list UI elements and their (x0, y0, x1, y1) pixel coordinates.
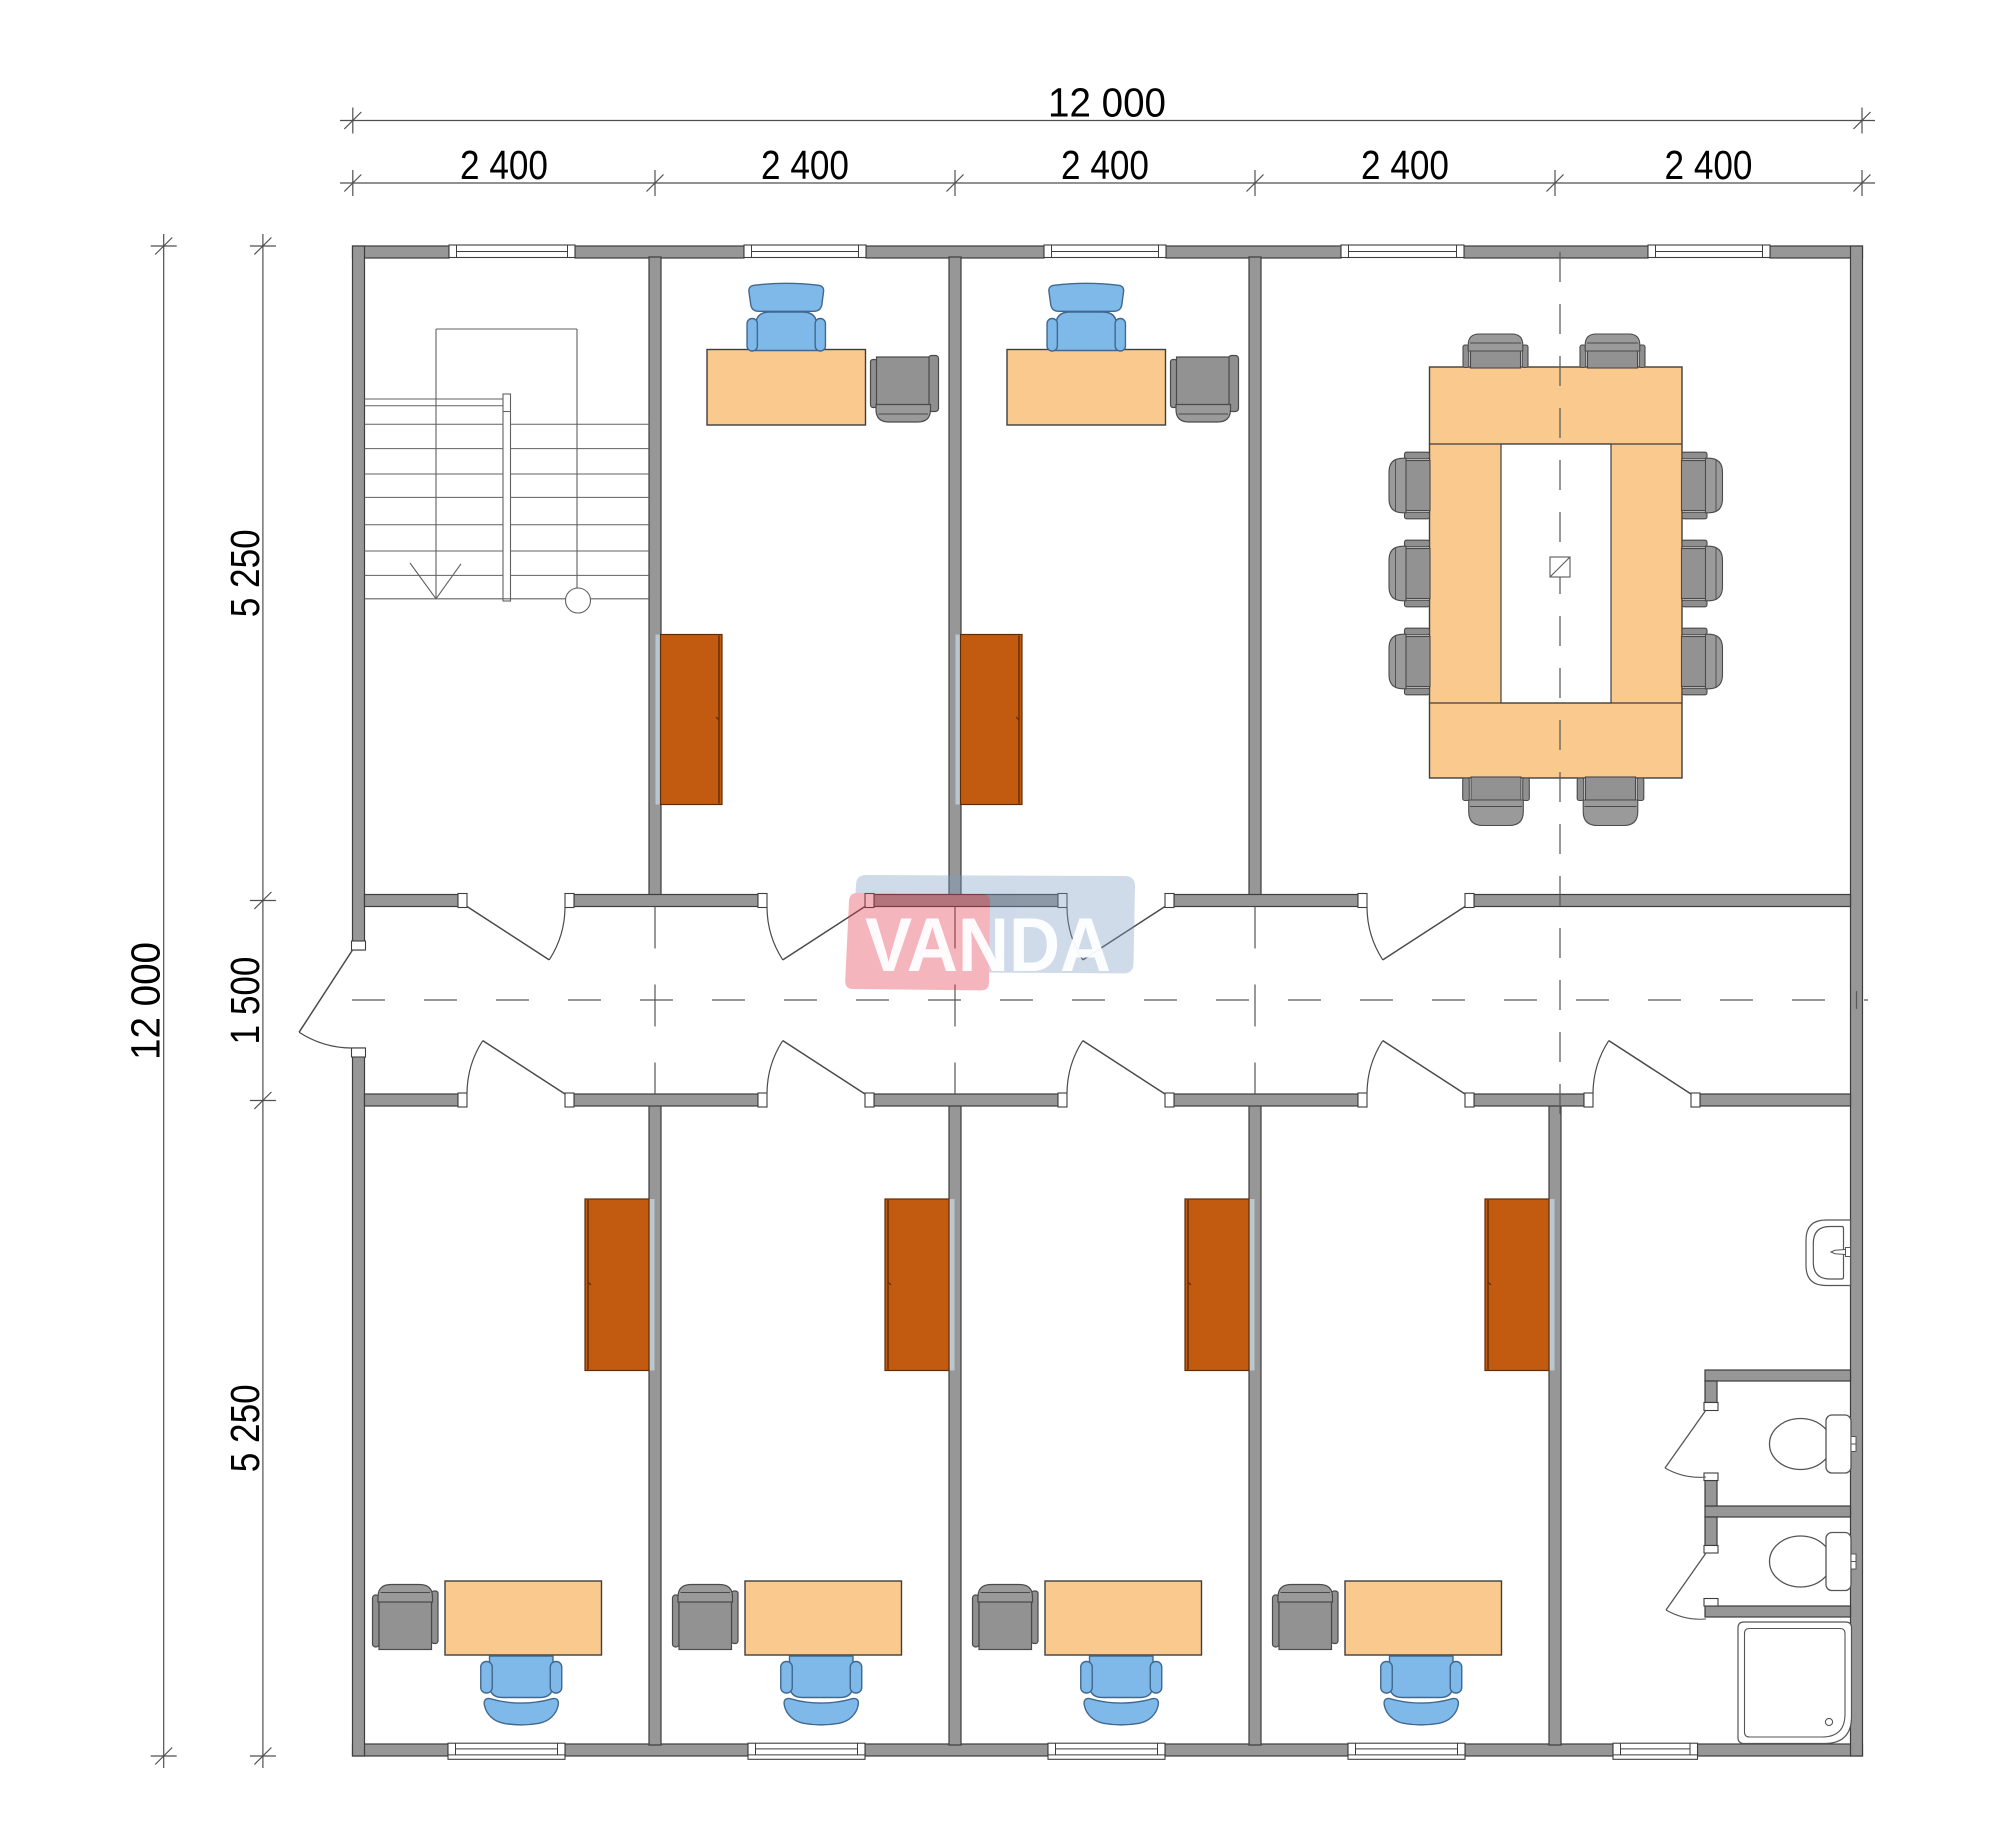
svg-text:2 400: 2 400 (1061, 142, 1149, 188)
svg-text:1 500: 1 500 (222, 957, 268, 1045)
svg-text:5 250: 5 250 (222, 1384, 268, 1472)
svg-text:2 400: 2 400 (460, 142, 548, 188)
svg-text:2 400: 2 400 (761, 142, 849, 188)
svg-text:5 250: 5 250 (222, 529, 268, 617)
svg-text:2 400: 2 400 (1665, 142, 1753, 188)
svg-text:VANDA: VANDA (865, 903, 1111, 988)
svg-text:12 000: 12 000 (1048, 80, 1166, 126)
svg-text:2 400: 2 400 (1361, 142, 1449, 188)
svg-text:12 000: 12 000 (123, 942, 169, 1060)
